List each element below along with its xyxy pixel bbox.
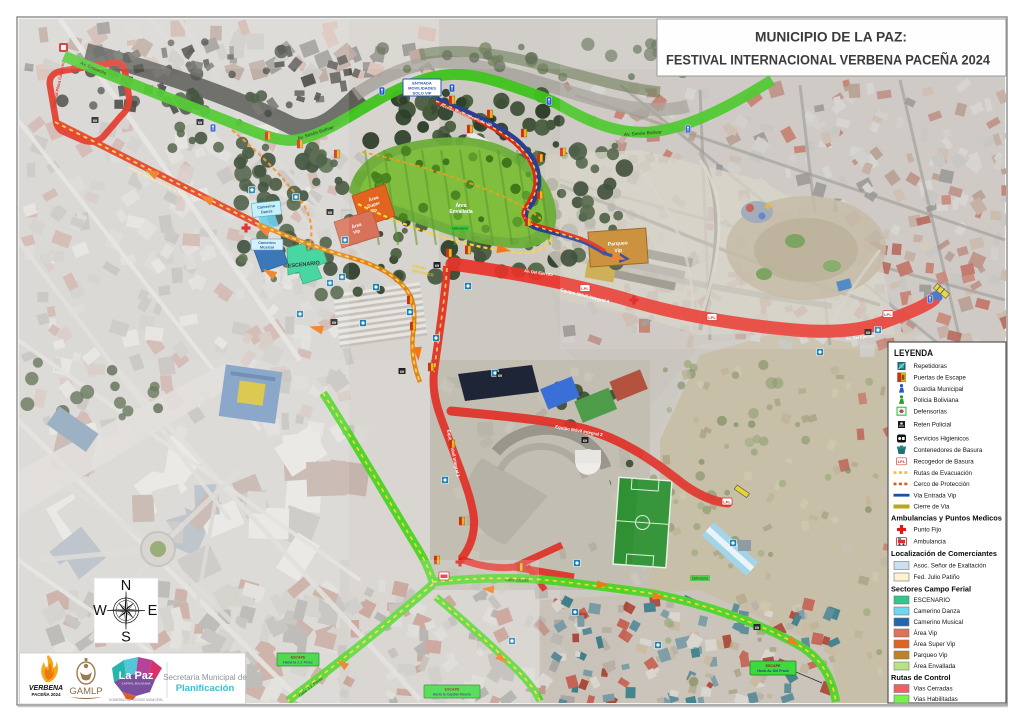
svg-text:E: E bbox=[148, 603, 158, 619]
svg-text:Cerco de Protección: Cerco de Protección bbox=[914, 481, 971, 488]
svg-text:FESTIVAL INTERNACIONAL VERBENA: FESTIVAL INTERNACIONAL VERBENA PACEÑA 20… bbox=[666, 53, 990, 68]
svg-text:Cierre de Via: Cierre de Via bbox=[914, 504, 951, 511]
svg-text:Camerino Danza: Camerino Danza bbox=[914, 608, 961, 615]
svg-text:Envallada: Envallada bbox=[449, 209, 473, 215]
svg-text:Guardia Municipal: Guardia Municipal bbox=[914, 386, 964, 393]
svg-text:Planificación: Planificación bbox=[176, 683, 235, 694]
svg-text:Defensoría: Defensoría bbox=[452, 227, 468, 231]
svg-text:Área Envallada: Área Envallada bbox=[914, 663, 957, 670]
svg-text:MUNICIPIO DE LA PAZ:: MUNICIPIO DE LA PAZ: bbox=[755, 30, 907, 45]
svg-text:PACEÑA 2024: PACEÑA 2024 bbox=[31, 692, 61, 697]
svg-text:LEYENDA: LEYENDA bbox=[894, 348, 933, 359]
svg-text:GAMLP: GAMLP bbox=[69, 686, 102, 697]
svg-text:Defensorías: Defensorías bbox=[914, 408, 947, 415]
svg-text:Reten Policial: Reten Policial bbox=[914, 422, 952, 429]
svg-text:69: 69 bbox=[435, 264, 439, 268]
svg-text:Fed. Julio Patiño: Fed. Julio Patiño bbox=[914, 574, 961, 581]
svg-text:69: 69 bbox=[400, 370, 404, 374]
svg-text:Camerino Musical: Camerino Musical bbox=[914, 619, 964, 626]
svg-text:Vias Cerradas: Vias Cerradas bbox=[914, 686, 953, 693]
svg-text:La Paz: La Paz bbox=[119, 670, 154, 682]
svg-text:Área Super Vip: Área Super Vip bbox=[914, 641, 956, 648]
svg-text:N: N bbox=[121, 578, 131, 594]
svg-text:Rutas de Evacuación: Rutas de Evacuación bbox=[914, 470, 973, 477]
svg-text:Sectores Campo Ferial: Sectores Campo Ferial bbox=[891, 584, 971, 593]
svg-text:GOBIERNO AUTONOMO MUNICIPAL: GOBIERNO AUTONOMO MUNICIPAL bbox=[109, 698, 164, 702]
svg-text:Contenedores de Basura: Contenedores de Basura bbox=[914, 447, 983, 454]
svg-text:Puertas de Escape: Puertas de Escape bbox=[914, 375, 967, 382]
svg-text:LPL: LPL bbox=[898, 459, 906, 464]
svg-text:Parqueo Vip: Parqueo Vip bbox=[914, 652, 949, 659]
svg-text:Localización de Comerciantes: Localización de Comerciantes bbox=[891, 549, 997, 558]
svg-text:Servicios Higienicos: Servicios Higienicos bbox=[914, 436, 969, 443]
svg-text:69: 69 bbox=[498, 374, 502, 378]
svg-text:S: S bbox=[121, 630, 131, 646]
svg-text:Punto Fijo: Punto Fijo bbox=[914, 527, 942, 534]
svg-text:Rutas de Control: Rutas de Control bbox=[891, 673, 951, 682]
svg-text:Ambulancias y Puntos Medicos: Ambulancias y Puntos Medicos bbox=[891, 513, 1002, 522]
svg-text:W: W bbox=[93, 603, 107, 619]
svg-text:69: 69 bbox=[583, 439, 587, 443]
svg-text:Asoc. Señor de Exaltación: Asoc. Señor de Exaltación bbox=[914, 563, 987, 570]
svg-text:CAPITAL BOLIVIANA: CAPITAL BOLIVIANA bbox=[122, 682, 151, 686]
svg-text:Recogedor de Basura: Recogedor de Basura bbox=[914, 459, 975, 466]
svg-text:Área Vip: Área Vip bbox=[914, 630, 938, 637]
svg-text:VERBENA: VERBENA bbox=[29, 685, 63, 692]
svg-text:Repetidoras: Repetidoras bbox=[914, 363, 947, 370]
svg-text:ESCENARIO: ESCENARIO bbox=[914, 597, 951, 604]
svg-text:Via Entrada Vip: Via Entrada Vip bbox=[914, 492, 957, 499]
svg-text:Policia Boliviana: Policia Boliviana bbox=[914, 397, 960, 404]
svg-text:Ambulancia: Ambulancia bbox=[914, 539, 947, 546]
svg-text:Área: Área bbox=[455, 202, 466, 209]
svg-text:Secretaria Municipal de: Secretaria Municipal de bbox=[163, 673, 247, 682]
svg-text:SOLO VIP: SOLO VIP bbox=[413, 91, 432, 96]
svg-text:Vias Habilitadas: Vias Habilitadas bbox=[914, 696, 958, 703]
